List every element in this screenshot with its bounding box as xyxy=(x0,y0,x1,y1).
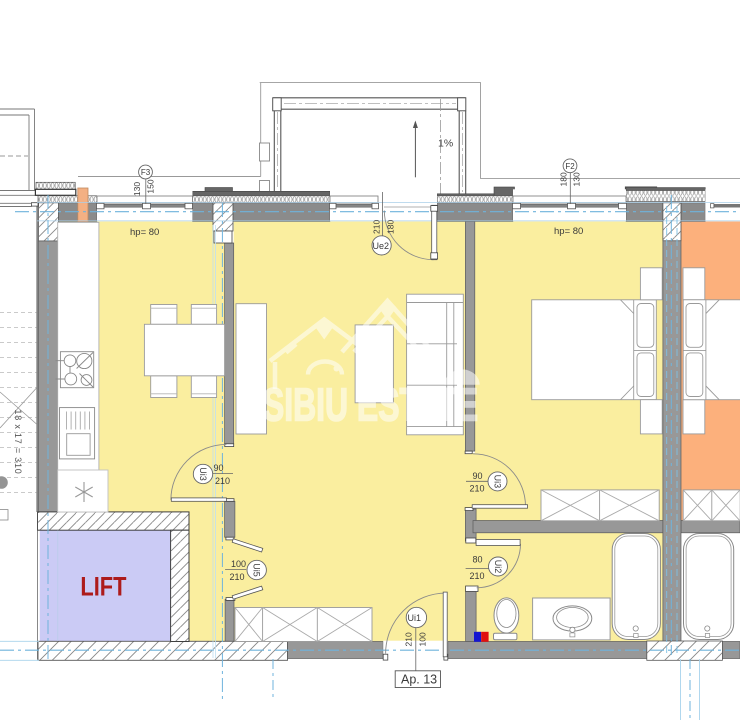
svg-text:hp= 80: hp= 80 xyxy=(554,226,583,237)
svg-text:Ue2: Ue2 xyxy=(373,241,390,251)
svg-text:Ui3: Ui3 xyxy=(492,475,502,489)
svg-text:210: 210 xyxy=(372,220,382,234)
svg-text:Ui5: Ui5 xyxy=(252,563,262,577)
svg-text:LIFT: LIFT xyxy=(80,572,126,602)
svg-text:F3: F3 xyxy=(141,168,151,177)
svg-text:210: 210 xyxy=(215,476,230,486)
svg-text:210: 210 xyxy=(230,572,245,582)
svg-text:130: 130 xyxy=(572,172,582,186)
svg-text:1%: 1% xyxy=(438,138,453,150)
svg-text:90: 90 xyxy=(214,463,224,473)
svg-text:80: 80 xyxy=(473,555,483,565)
svg-text:130: 130 xyxy=(132,182,142,196)
svg-text:150: 150 xyxy=(145,179,155,193)
svg-text:Ui3: Ui3 xyxy=(198,467,208,481)
svg-text:210: 210 xyxy=(404,632,414,646)
svg-text:Ui1: Ui1 xyxy=(408,613,422,623)
svg-text:100: 100 xyxy=(418,632,428,646)
svg-text:210: 210 xyxy=(470,484,485,494)
svg-text:18 x 17 = 310: 18 x 17 = 310 xyxy=(13,409,23,474)
svg-text:180: 180 xyxy=(558,172,568,186)
svg-text:Ui2: Ui2 xyxy=(493,560,503,574)
svg-text:hp= 80: hp= 80 xyxy=(130,227,159,238)
svg-text:180: 180 xyxy=(386,220,396,234)
svg-text:Ap. 13: Ap. 13 xyxy=(401,672,437,686)
svg-text:210: 210 xyxy=(470,571,485,581)
svg-text:SIBIU ESTATE: SIBIU ESTATE xyxy=(263,379,478,431)
svg-text:F2: F2 xyxy=(565,162,575,171)
svg-text:90: 90 xyxy=(473,471,483,481)
svg-text:100: 100 xyxy=(231,559,246,569)
